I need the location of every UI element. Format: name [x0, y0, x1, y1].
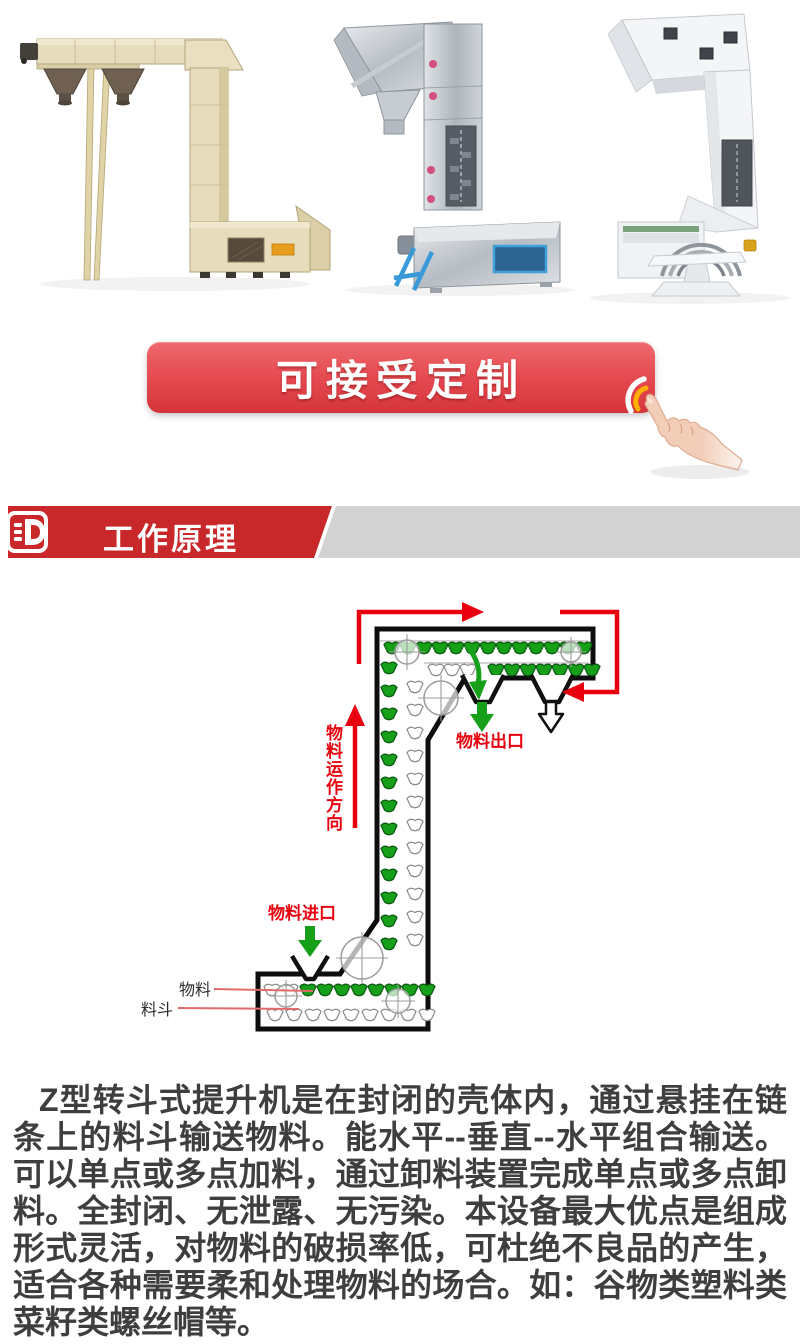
material-label: 物料 — [179, 976, 211, 1000]
hand-shape — [645, 394, 742, 470]
direction-label: 物料运作方向 — [320, 724, 345, 832]
outlet-funnel-2 — [531, 675, 573, 702]
inlet-label: 物料进口 — [268, 899, 336, 924]
click-arcs-icon — [628, 379, 646, 411]
working-principle-diagram — [0, 560, 800, 1060]
product-photo-stainless — [334, 22, 575, 296]
hopper-label: 料斗 — [141, 996, 173, 1020]
section-title: 工作原理 — [103, 514, 239, 559]
description-text: Z型转斗式提升机是在封闭的壳体内，通过悬挂在链条上的料斗输送物料。能水平--垂直… — [13, 1082, 787, 1341]
pointing-hand-icon — [520, 362, 780, 480]
product-detail-page: 可接受定制 工作原理 — [0, 0, 800, 1344]
outlet-arrow-outline — [539, 702, 563, 732]
inlet-arrow-green — [298, 926, 322, 957]
product-photo-beige — [20, 39, 330, 291]
hero-photos — [0, 0, 800, 320]
product-photo-white — [590, 14, 790, 304]
outlet-label: 物料出口 — [456, 727, 524, 752]
section-logo-icon — [5, 510, 49, 554]
